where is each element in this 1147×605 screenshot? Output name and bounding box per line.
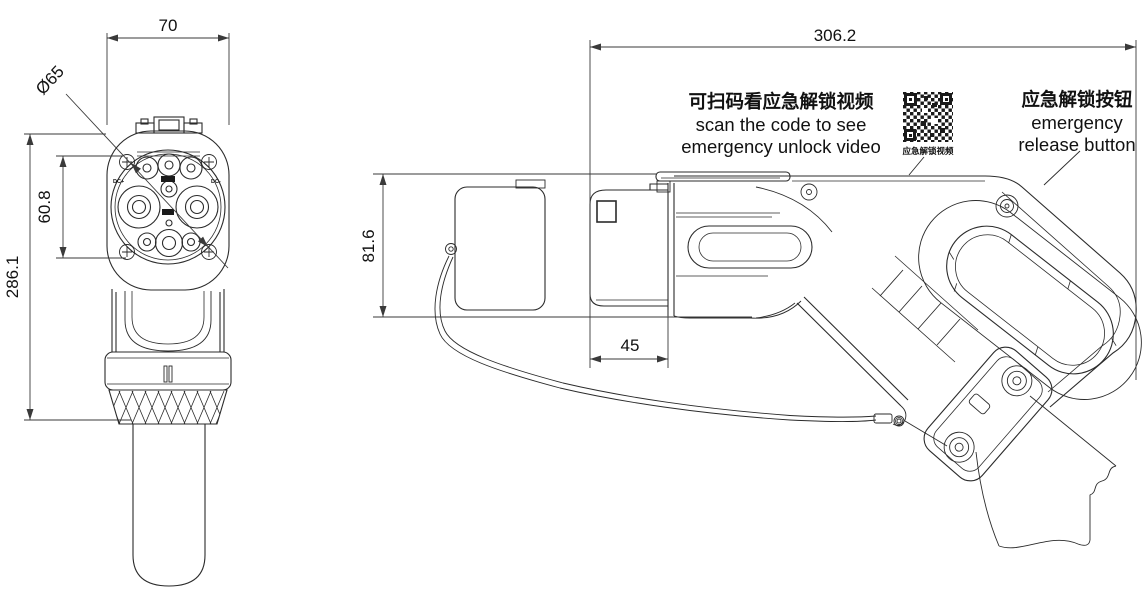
dim-overall-height: 286.1: [3, 256, 22, 299]
qr-code: [903, 92, 953, 142]
release-note-zh: 应急解锁按钮: [1021, 89, 1133, 110]
scan-note-en-1: scan the code to see: [696, 114, 867, 135]
dust-cap: [446, 180, 546, 310]
scan-note-zh: 可扫码看应急解锁视频: [688, 91, 874, 112]
pin-label-dc-plus: DC+: [113, 179, 124, 185]
exit-cable: [976, 396, 1116, 548]
release-leader-line: [1044, 151, 1080, 185]
front-view-dimensions: [24, 33, 229, 420]
front-view: DC+ DC-: [105, 117, 231, 586]
cable-clamp: [918, 341, 1059, 488]
handle-loop: [896, 178, 1147, 423]
dim-overall-length: 306.2: [814, 26, 857, 45]
scan-note-en-2: emergency unlock video: [681, 136, 881, 157]
side-view: [435, 92, 1147, 548]
dim-pin-pitch: 60.8: [35, 190, 54, 223]
drawing-canvas: DC+ DC-: [0, 0, 1147, 605]
top-latch-plate: [656, 172, 790, 192]
release-note-en-1: emergency: [1031, 112, 1123, 133]
release-note-en-2: release button: [1018, 134, 1135, 155]
dim-side-height: 81.6: [359, 229, 378, 262]
dim-face-diameter: Ø65: [32, 62, 68, 98]
nozzle: [590, 183, 674, 316]
qr-caption: 应急解锁视频: [902, 146, 954, 156]
gun-body: [674, 176, 1136, 446]
dim-width-70: 70: [159, 16, 178, 35]
front-body: [105, 289, 231, 586]
tether-cord: [435, 256, 904, 426]
dim-nozzle-length: 45: [621, 336, 640, 355]
nozzle-detail-square: [597, 201, 616, 222]
qr-leader-line: [909, 157, 924, 175]
cable-front: [133, 424, 205, 586]
technical-drawing-page: DC+ DC-: [0, 0, 1147, 605]
pin-label-dc-minus: DC-: [211, 179, 221, 185]
